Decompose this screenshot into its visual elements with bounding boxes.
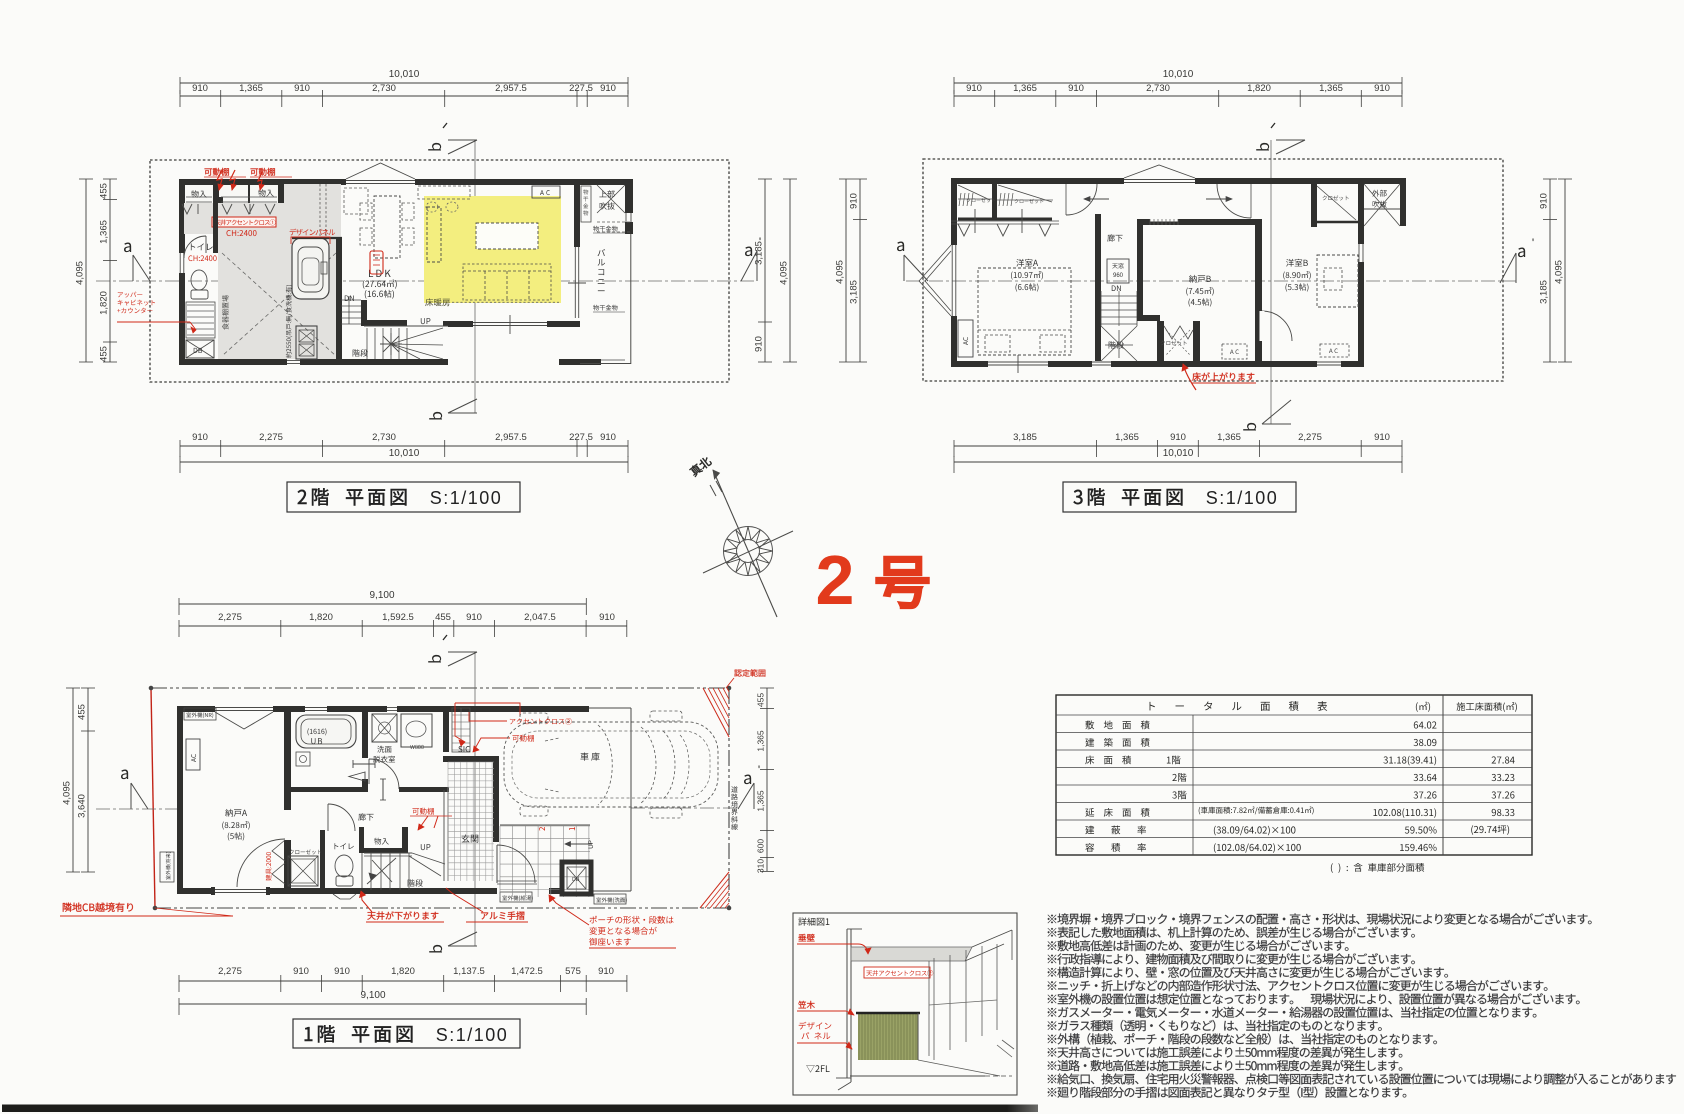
- svg-text:3,185: 3,185: [754, 241, 765, 265]
- svg-text:1,365: 1,365: [1217, 432, 1241, 443]
- svg-text:910: 910: [466, 612, 482, 623]
- svg-text:1,365: 1,365: [1115, 432, 1139, 443]
- svg-text:2,275: 2,275: [218, 966, 242, 977]
- svg-text:310: 310: [756, 859, 766, 873]
- svg-text:3,640: 3,640: [77, 794, 88, 818]
- svg-text:4,095: 4,095: [62, 781, 73, 805]
- svg-text:575: 575: [565, 966, 581, 977]
- svg-text:S:1/100: S:1/100: [436, 1025, 509, 1045]
- svg-text:455: 455: [77, 704, 88, 720]
- svg-text:455: 455: [99, 346, 110, 362]
- svg-text:1,137.5: 1,137.5: [453, 966, 485, 977]
- svg-text:1,365: 1,365: [99, 220, 110, 244]
- svg-text:1,365: 1,365: [239, 83, 263, 94]
- svg-text:455: 455: [99, 183, 110, 199]
- svg-text:2,957.5: 2,957.5: [495, 432, 527, 443]
- svg-text:1,365: 1,365: [1013, 83, 1037, 94]
- svg-text:600: 600: [756, 839, 766, 853]
- svg-text:3,185: 3,185: [849, 280, 860, 304]
- svg-text:9,100: 9,100: [360, 990, 385, 1001]
- svg-text:910: 910: [1539, 193, 1550, 209]
- svg-text:2,275: 2,275: [1298, 432, 1322, 443]
- svg-text:910: 910: [754, 336, 765, 352]
- svg-text:227.5: 227.5: [569, 432, 593, 443]
- svg-text:2,730: 2,730: [1146, 83, 1170, 94]
- svg-text:910: 910: [192, 432, 208, 443]
- svg-text:1,365: 1,365: [756, 730, 766, 752]
- svg-text:960: 960: [1113, 273, 1124, 279]
- svg-text:1,820: 1,820: [1247, 83, 1271, 94]
- svg-text:4,095: 4,095: [75, 261, 86, 285]
- svg-text:3,185: 3,185: [1539, 280, 1550, 304]
- svg-text:455: 455: [756, 693, 766, 707]
- svg-text:910: 910: [1170, 432, 1186, 443]
- svg-text:10,010: 10,010: [389, 69, 420, 80]
- svg-text:910: 910: [598, 966, 614, 977]
- svg-text:S:1/100: S:1/100: [1206, 488, 1279, 508]
- svg-text:910: 910: [599, 612, 615, 623]
- svg-text:910: 910: [966, 83, 982, 94]
- svg-text:4,095: 4,095: [1554, 260, 1565, 284]
- svg-text:': ': [1532, 236, 1534, 250]
- svg-text:1,820: 1,820: [309, 612, 333, 623]
- svg-text:910: 910: [849, 193, 860, 209]
- svg-text:2,275: 2,275: [259, 432, 283, 443]
- svg-text:S:1/100: S:1/100: [430, 488, 503, 508]
- svg-text:4,095: 4,095: [835, 260, 846, 284]
- svg-text:1,472.5: 1,472.5: [511, 966, 543, 977]
- svg-text:1,365: 1,365: [756, 790, 766, 812]
- svg-text:1,365: 1,365: [1319, 83, 1343, 94]
- svg-text:10,010: 10,010: [1163, 448, 1194, 459]
- svg-text:910: 910: [600, 432, 616, 443]
- svg-text:1,820: 1,820: [99, 291, 110, 315]
- svg-text:910: 910: [1374, 83, 1390, 94]
- svg-text:2,047.5: 2,047.5: [524, 612, 556, 623]
- svg-text:910: 910: [334, 966, 350, 977]
- svg-text:2: 2: [816, 541, 855, 619]
- svg-text:910: 910: [293, 966, 309, 977]
- svg-text:10,010: 10,010: [389, 448, 420, 459]
- svg-text:4,095: 4,095: [779, 261, 790, 285]
- svg-text:1,592.5: 1,592.5: [382, 612, 414, 623]
- svg-text:': ': [758, 763, 760, 777]
- svg-text:910: 910: [192, 83, 208, 94]
- svg-text:910: 910: [294, 83, 310, 94]
- svg-text:9,100: 9,100: [369, 590, 394, 601]
- svg-text:455: 455: [435, 612, 451, 623]
- svg-text:2,730: 2,730: [372, 83, 396, 94]
- svg-text:3,185: 3,185: [1013, 432, 1037, 443]
- svg-text:910: 910: [1374, 432, 1390, 443]
- svg-text:2,957.5: 2,957.5: [495, 83, 527, 94]
- svg-text:2,730: 2,730: [372, 432, 396, 443]
- svg-text:910: 910: [1068, 83, 1084, 94]
- svg-text:227.5: 227.5: [569, 83, 593, 94]
- svg-text:2,275: 2,275: [218, 612, 242, 623]
- svg-text:910: 910: [600, 83, 616, 94]
- svg-text:10,010: 10,010: [1163, 69, 1194, 80]
- svg-text:1,820: 1,820: [391, 966, 415, 977]
